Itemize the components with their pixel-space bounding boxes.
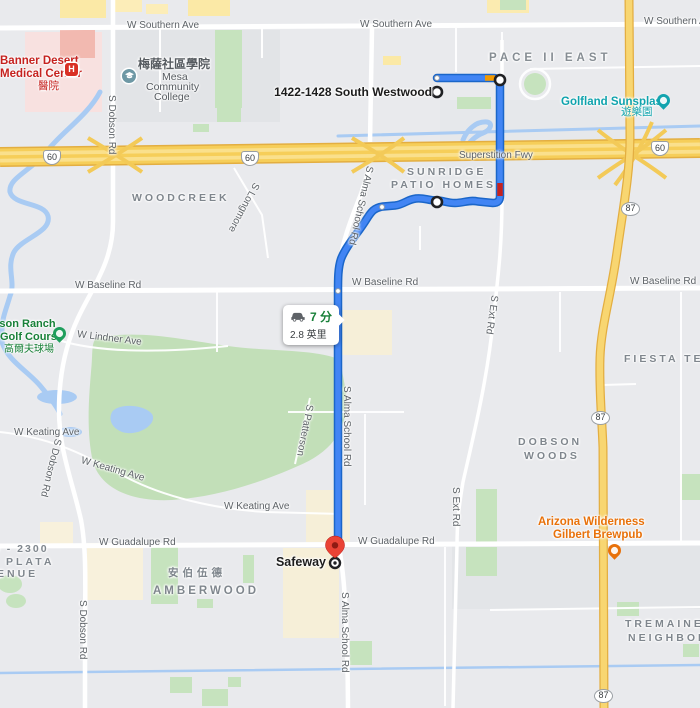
car-icon	[290, 311, 306, 322]
az87-shield-2: 87	[591, 411, 610, 425]
az87-shield-1: 87	[621, 202, 640, 216]
origin-label[interactable]: 1422-1428 South Westwood	[274, 86, 432, 99]
poi-golf-course-line1[interactable]: Dobson Ranch	[0, 318, 56, 330]
street-label-southern-w: W Southern Ave	[127, 20, 199, 31]
poi-banner-desert-zh[interactable]: 醫院	[38, 81, 59, 93]
street-label-guadalupe-w: W Guadalupe Rd	[99, 537, 176, 548]
street-label-keating-w: W Keating Ave	[14, 427, 79, 438]
neighborhood-tremaine-1: TREMAINE	[625, 619, 700, 631]
route-duration: 7 分	[310, 308, 332, 325]
street-label-dobson-1: S Dobson Rd	[106, 95, 117, 154]
street-label-alma-2: S Alma School Rd	[341, 386, 352, 467]
neighborhood-sunridge-2: PATIO HOMES	[391, 180, 496, 192]
route-distance: 2.8 英里	[290, 326, 332, 341]
route-info-badge[interactable]: 7 分 2.8 英里	[283, 305, 339, 345]
poi-brewpub-line2[interactable]: Gilbert Brewpub	[553, 529, 642, 542]
poi-brewpub-line1[interactable]: Arizona Wilderness	[538, 516, 645, 529]
neighborhood-woodcreek: WOODCREEK	[132, 193, 230, 205]
street-label-guadalupe-c: W Guadalupe Rd	[358, 536, 435, 547]
neighborhood-dobson-woods-1: DOBSON	[518, 437, 582, 449]
neighborhood-fiesta-tech: FIESTA TECH	[624, 354, 700, 366]
poi-mesa-cc-line3[interactable]: College	[154, 92, 190, 104]
neighborhood-plata-1: 0 - 2300	[0, 544, 49, 556]
map-canvas[interactable]: W Southern Ave W Southern Ave W Southern…	[0, 0, 700, 708]
origin-marker[interactable]	[432, 87, 442, 97]
street-label-baseline-c: W Baseline Rd	[352, 277, 418, 288]
destination-label[interactable]: Safeway	[276, 556, 326, 570]
neighborhood-amberwood-zh: 安伯伍德	[168, 568, 226, 580]
az87-shield-3: 87	[594, 689, 613, 703]
neighborhood-plata-3: ENUE	[0, 569, 38, 581]
street-label-southern-c: W Southern Ave	[360, 19, 432, 30]
poi-golf-course-zh[interactable]: 高爾夫球場	[4, 344, 54, 355]
street-label-southern-e: W Southern Ave	[644, 16, 700, 27]
poi-mesa-cc-zh[interactable]: 梅薩社區學院	[138, 58, 210, 71]
school-icon[interactable]	[122, 69, 136, 83]
neighborhood-sunridge-1: SUNRIDGE	[407, 167, 486, 179]
street-label-dobson-3: S Dobson Rd	[77, 600, 88, 659]
street-label-baseline-w: W Baseline Rd	[75, 280, 141, 291]
street-label-keating-e: W Keating Ave	[224, 501, 289, 512]
neighborhood-tremaine-2: NEIGHBORHOOD	[628, 633, 700, 645]
neighborhood-dobson-woods-2: WOODS	[524, 451, 580, 463]
neighborhood-pace-ii-east: PACE II EAST	[489, 52, 612, 65]
street-label-baseline-e: W Baseline Rd	[630, 276, 696, 287]
poi-golfland-zh[interactable]: 遊樂園	[621, 107, 653, 119]
hospital-icon[interactable]: H	[65, 63, 78, 76]
neighborhood-amberwood: AMBERWOOD	[153, 585, 259, 598]
street-label-ext-2: S Ext Rd	[450, 487, 461, 526]
street-label-superstition: Superstition Fwy	[459, 150, 533, 161]
neighborhood-plata-2: PLATA	[6, 557, 54, 569]
street-label-alma-3: S Alma School Rd	[339, 592, 350, 673]
